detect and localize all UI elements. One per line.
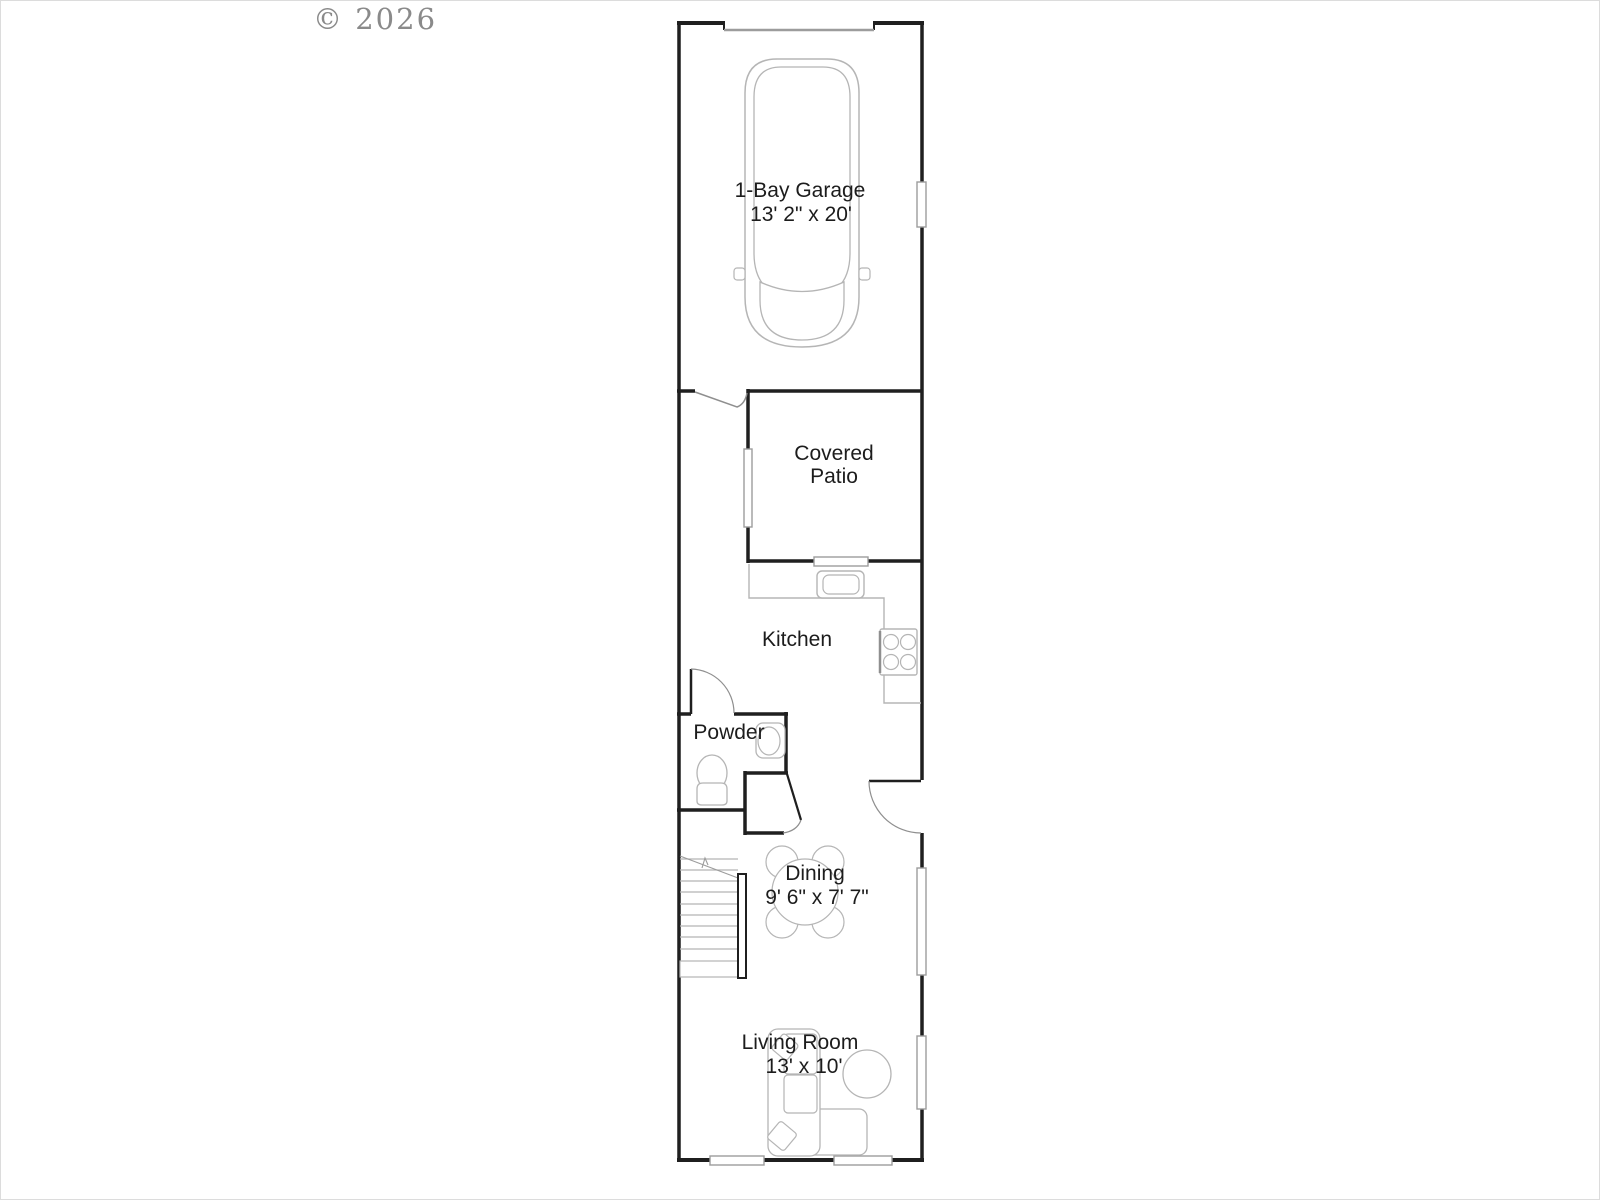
entry-door-swing [869, 781, 921, 833]
car-mirror-right [859, 268, 870, 280]
window-patio-left [744, 449, 752, 527]
copyright-watermark: © 2026 [313, 2, 437, 36]
garage-label: 1-Bay Garage [735, 179, 866, 202]
window-living-right [917, 1036, 926, 1109]
dining-label: Dining [785, 862, 845, 885]
car-mirror-left [734, 268, 745, 280]
floor-plan: 1-Bay Garage 13' 2" x 20' Covered Patio … [1, 1, 1600, 1200]
stair-rail-wall [738, 874, 746, 978]
garage-dims: 13' 2" x 20' [750, 203, 852, 226]
kitchen-label: Kitchen [762, 628, 832, 651]
stove-icon [880, 629, 917, 675]
garage-hall-door-swing [695, 392, 747, 407]
round-table-icon [843, 1050, 891, 1098]
dining-dims: 9' 6" x 7' 7" [765, 886, 868, 909]
floor-plan-page: 1-Bay Garage 13' 2" x 20' Covered Patio … [0, 0, 1600, 1200]
kitchen-door-swing [691, 669, 734, 713]
patio-label-line1: Covered [794, 442, 873, 465]
powder-door-swing [783, 820, 801, 833]
patio-label-line2: Patio [810, 465, 858, 488]
window-dining-right [917, 868, 926, 975]
toilet-tank [697, 783, 727, 805]
window-living-bottom-left [710, 1156, 764, 1165]
window-garage-right [917, 182, 926, 227]
powder-door-panel [787, 774, 801, 820]
window-living-bottom-right [834, 1156, 892, 1165]
living-dims: 13' x 10' [766, 1055, 843, 1078]
living-label: Living Room [742, 1031, 859, 1054]
powder-label: Powder [693, 721, 764, 744]
toilet-icon [697, 755, 727, 805]
stair-landing [680, 961, 738, 977]
stairs [680, 856, 746, 978]
stair-treads [680, 859, 738, 949]
window-kitchen-patio [814, 557, 868, 566]
